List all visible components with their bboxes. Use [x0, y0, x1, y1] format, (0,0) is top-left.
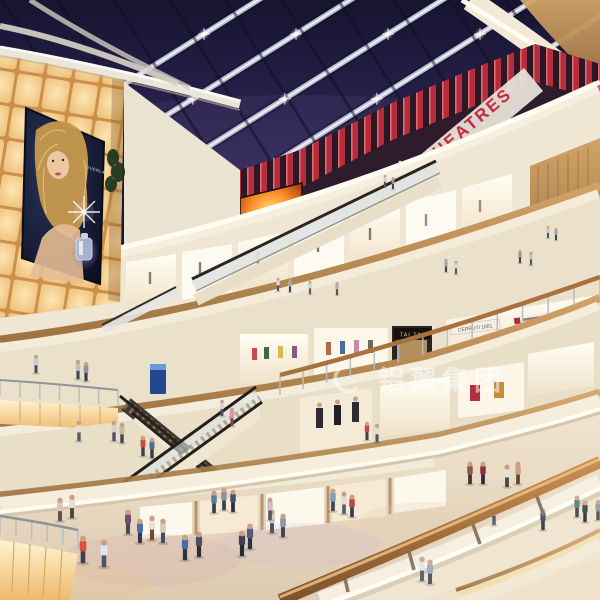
scene-canvas: THEATRES CERRUTI 1881: [0, 0, 600, 600]
mall-atrium-rendering: THEATRES CERRUTI 1881: [0, 0, 600, 600]
watermark-text: 铝翼集团: [378, 365, 506, 396]
